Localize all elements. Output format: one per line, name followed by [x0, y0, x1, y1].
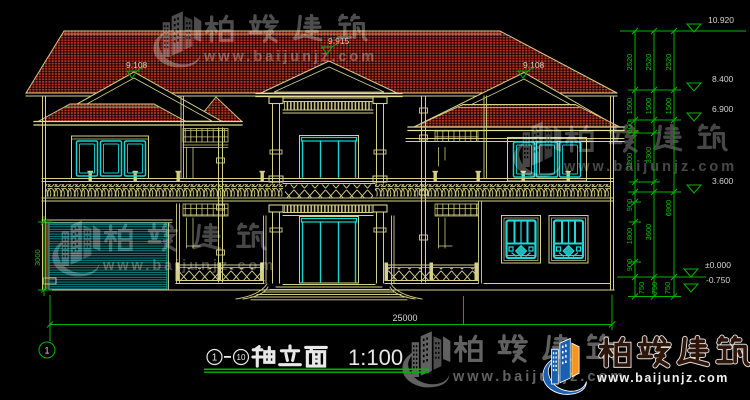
svg-text:6900: 6900	[664, 200, 673, 217]
svg-text:9.915: 9.915	[328, 36, 350, 46]
svg-text:-0.750: -0.750	[706, 275, 730, 285]
svg-text:1: 1	[44, 346, 49, 356]
svg-text:900: 900	[625, 259, 634, 272]
svg-text:1500: 1500	[625, 98, 634, 115]
svg-text:600: 600	[625, 121, 634, 134]
svg-text:750: 750	[650, 282, 659, 295]
svg-text:3600: 3600	[644, 224, 653, 241]
svg-text:9.108: 9.108	[126, 60, 148, 70]
svg-text:750: 750	[637, 282, 646, 295]
svg-text:6.900: 6.900	[712, 104, 734, 114]
svg-text:3.600: 3.600	[712, 176, 734, 186]
svg-text:2200: 2200	[625, 153, 634, 170]
svg-text:25000: 25000	[392, 313, 417, 323]
svg-text:750: 750	[663, 282, 672, 295]
svg-text:1800: 1800	[625, 228, 634, 245]
svg-text:2520: 2520	[625, 54, 634, 71]
svg-text:3000: 3000	[33, 249, 42, 266]
svg-text:www.baijunjz.com: www.baijunjz.com	[596, 371, 729, 385]
svg-text:1: 1	[212, 353, 218, 364]
svg-text:10: 10	[237, 353, 246, 362]
svg-text:8.400: 8.400	[712, 74, 734, 84]
svg-text:1:100: 1:100	[348, 345, 403, 370]
svg-text:2520: 2520	[644, 54, 653, 71]
svg-text:±0.000: ±0.000	[705, 260, 731, 270]
svg-text:9.108: 9.108	[523, 60, 545, 70]
svg-text:1500: 1500	[664, 98, 673, 115]
svg-text:10.920: 10.920	[708, 15, 734, 25]
svg-text:1500: 1500	[644, 98, 653, 115]
svg-text:3300: 3300	[644, 147, 653, 164]
svg-text:900: 900	[625, 199, 634, 212]
svg-text:2520: 2520	[664, 54, 673, 71]
